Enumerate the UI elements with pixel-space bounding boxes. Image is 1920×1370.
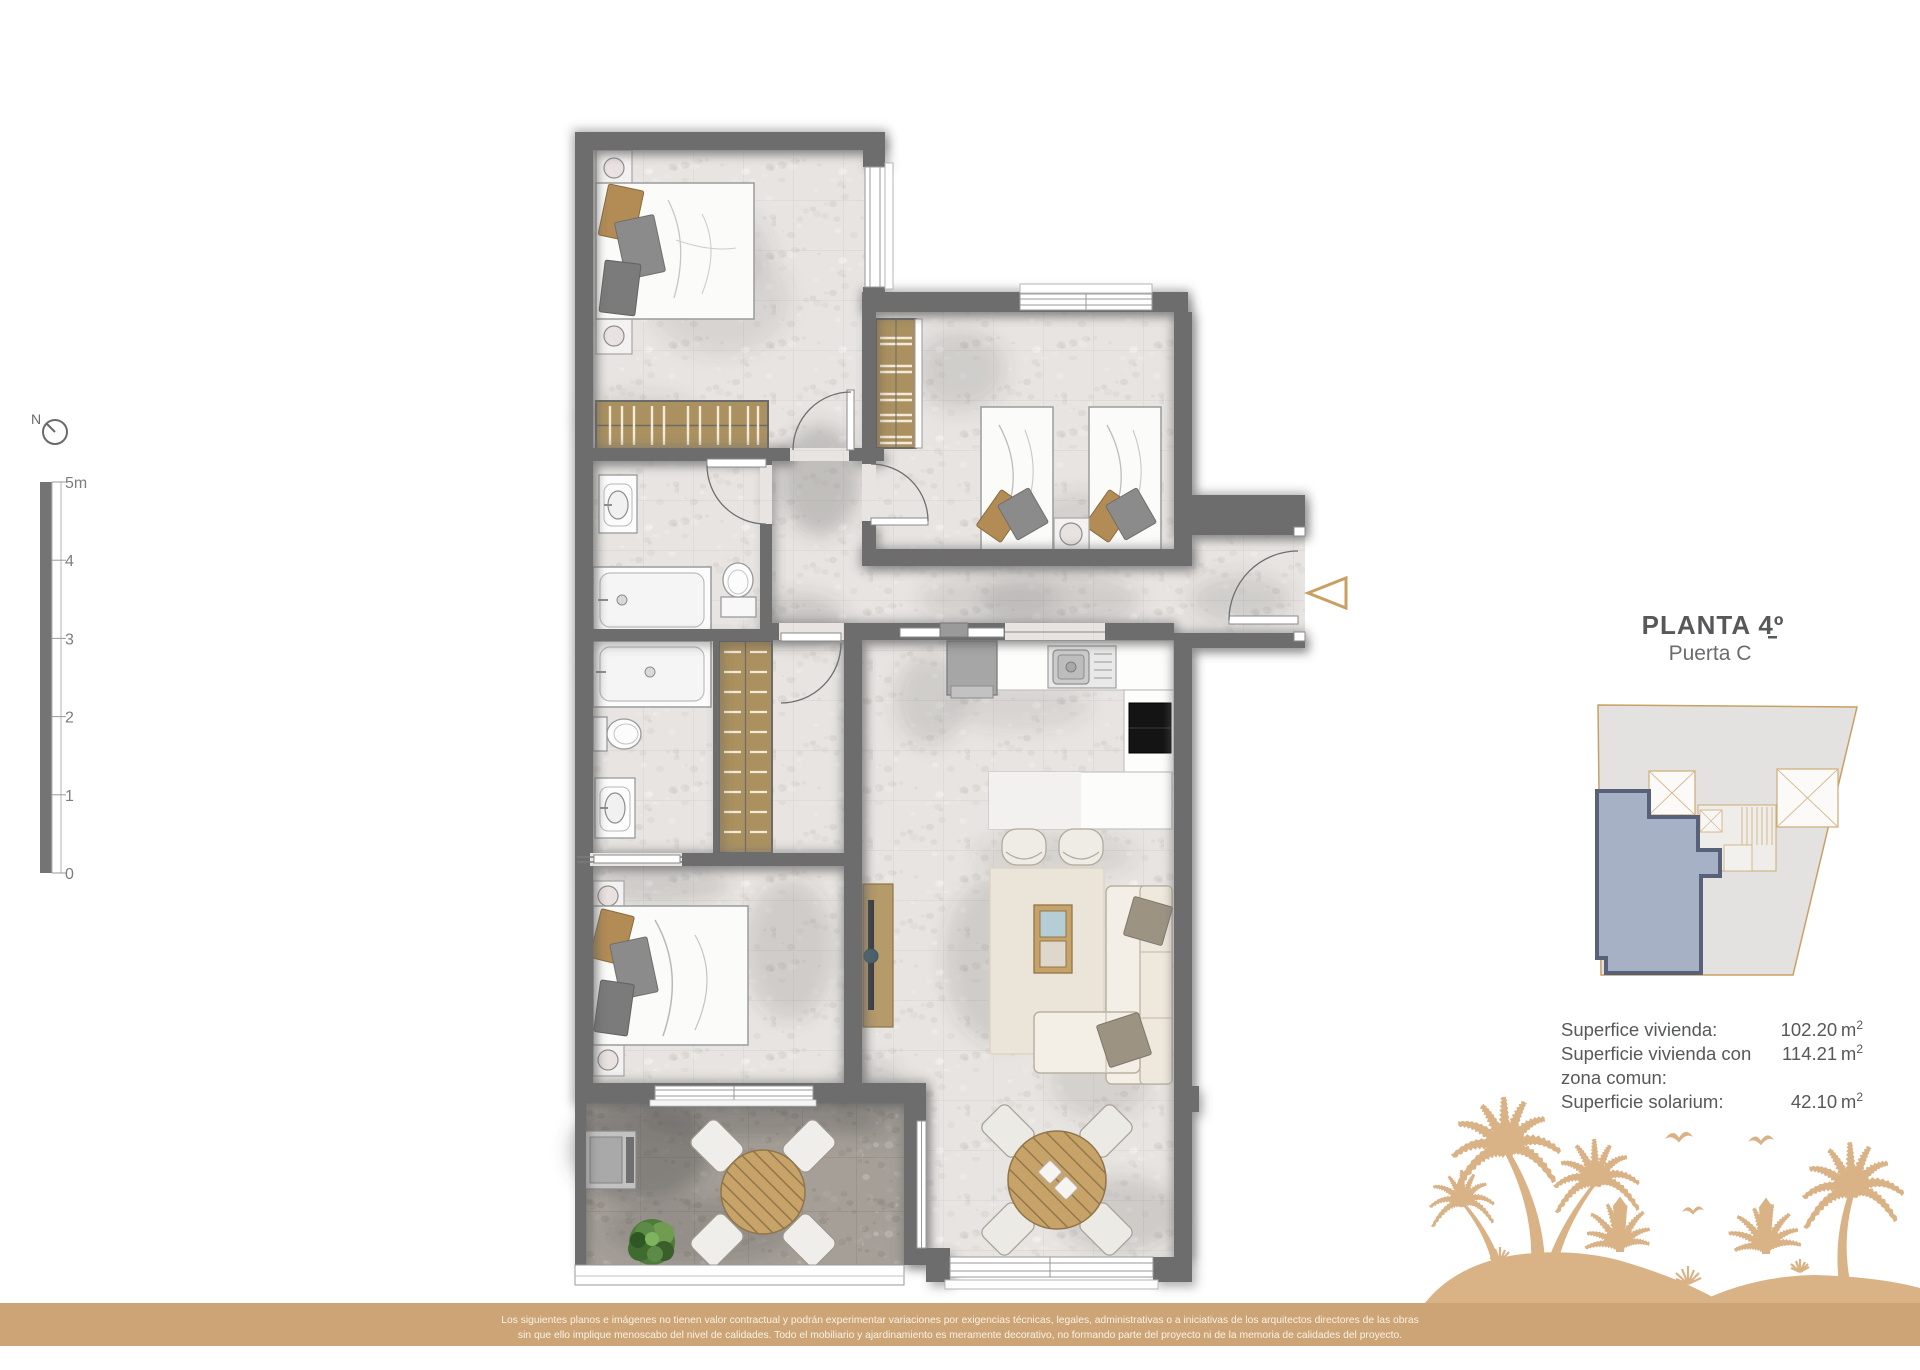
- svg-text:4: 4: [65, 553, 74, 570]
- svg-text:42.10 m2: 42.10 m2: [1791, 1090, 1863, 1112]
- svg-text:114.21 m2: 114.21 m2: [1782, 1042, 1863, 1064]
- svg-text:sin que ello implique menoscab: sin que ello implique menoscabo del nive…: [518, 1330, 1402, 1341]
- svg-text:N: N: [31, 411, 41, 427]
- svg-text:Superficie solarium:: Superficie solarium:: [1561, 1091, 1723, 1112]
- svg-text:5m: 5m: [65, 475, 87, 492]
- svg-text:102.20 m2: 102.20 m2: [1781, 1018, 1864, 1040]
- svg-text:1: 1: [65, 788, 74, 805]
- svg-text:0: 0: [65, 866, 74, 883]
- svg-text:Superficie vivienda con: Superficie vivienda con: [1561, 1043, 1751, 1064]
- svg-text:PLANTA 4º: PLANTA 4º: [1642, 610, 1785, 640]
- svg-text:zona comun:: zona comun:: [1561, 1067, 1667, 1088]
- svg-text:Puerta C: Puerta C: [1669, 642, 1752, 665]
- svg-text:Superfice vivienda:: Superfice vivienda:: [1561, 1019, 1717, 1040]
- svg-text:2: 2: [65, 710, 74, 727]
- svg-text:Los siguientes planos e imágen: Los siguientes planos e imágenes no tien…: [501, 1315, 1419, 1326]
- svg-text:3: 3: [65, 631, 74, 648]
